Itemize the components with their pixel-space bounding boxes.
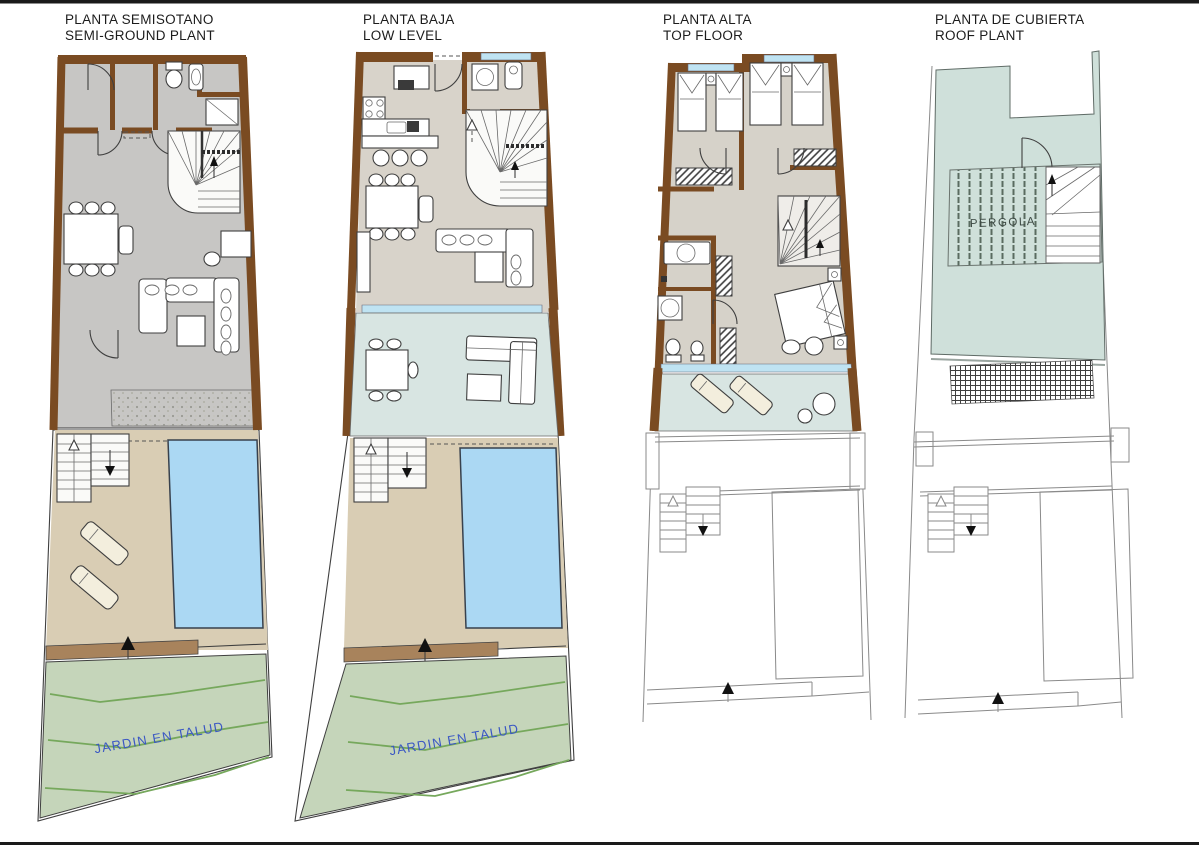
interior-stair <box>466 110 547 206</box>
sheet-bottom-border <box>0 842 1199 845</box>
plan1-title-en: SEMI-GROUND PLANT <box>65 28 215 43</box>
plan4-title-es: PLANTA DE CUBIERTA <box>935 12 1084 27</box>
coffee-table <box>475 252 503 282</box>
plan2-title-en: LOW LEVEL <box>363 28 442 43</box>
plan4-title-en: ROOF PLANT <box>935 28 1024 43</box>
plan1-title-es: PLANTA SEMISOTANO <box>65 12 214 27</box>
plan-semi-ground: PLANTA SEMISOTANO SEMI-GROUND PLANT JARD… <box>38 12 272 821</box>
outdoor-table <box>813 393 835 415</box>
interior-stair <box>168 131 240 213</box>
window <box>688 64 734 71</box>
svg-text:PERGOLA: PERGOLA <box>970 216 1036 230</box>
swimming-pool <box>168 440 263 628</box>
wall <box>58 55 246 64</box>
building <box>347 52 560 436</box>
glass-wall <box>362 305 542 313</box>
swimming-pool <box>460 448 562 628</box>
plan3-title-en: TOP FLOOR <box>663 28 743 43</box>
window <box>481 53 531 60</box>
plan2-title-es: PLANTA BAJA <box>363 12 455 27</box>
building <box>54 55 258 430</box>
outdoor-chair <box>798 409 812 423</box>
coffee-table <box>177 316 205 346</box>
glass-wall <box>661 364 852 372</box>
sheet-top-border <box>0 0 1199 4</box>
building <box>654 54 857 431</box>
interior-stair <box>778 196 840 266</box>
window <box>764 55 814 62</box>
cabinet <box>357 232 370 292</box>
plan3-title-es: PLANTA ALTA <box>663 12 752 27</box>
roof-stair <box>1046 167 1100 263</box>
floor-plan-sheet: PLANTA SEMISOTANO SEMI-GROUND PLANT JARD… <box>0 0 1199 850</box>
pergola-label: PERGOLA <box>970 216 1036 230</box>
laundry-fixtures <box>472 62 522 90</box>
